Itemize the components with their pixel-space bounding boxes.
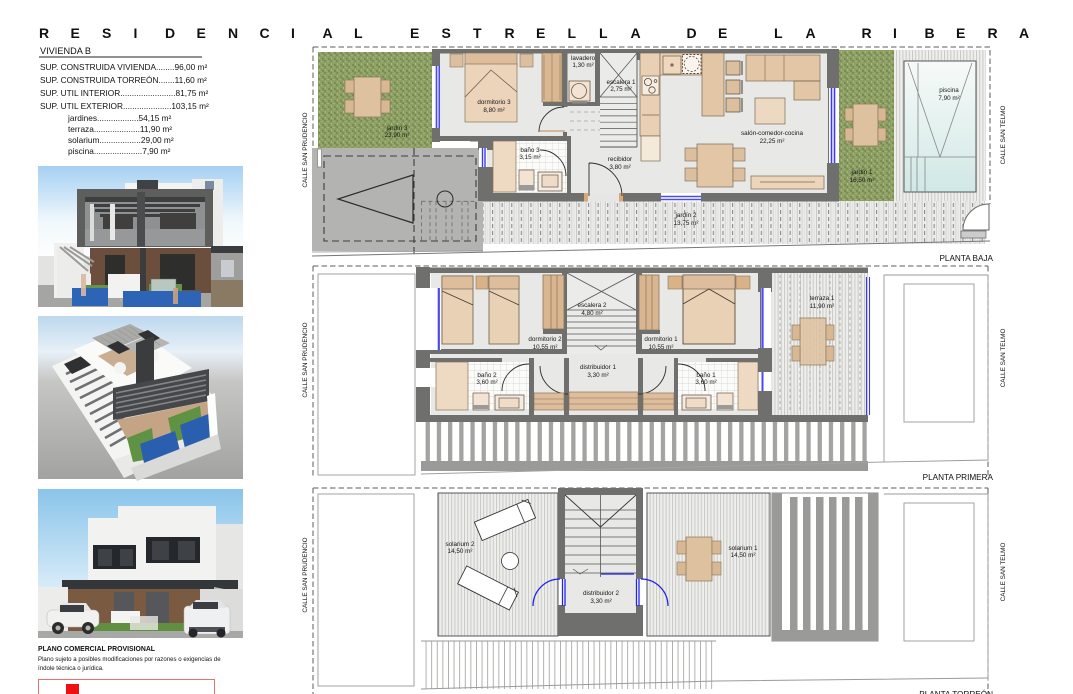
svg-text:3,60 m²: 3,60 m²: [695, 379, 716, 386]
svg-text:piscina: piscina: [939, 87, 959, 94]
svg-text:solarium 1: solarium 1: [728, 545, 758, 552]
svg-text:4,80 m²: 4,80 m²: [581, 310, 602, 317]
svg-text:13,75 m²: 13,75 m²: [674, 220, 699, 227]
svg-text:distribuidor 1: distribuidor 1: [580, 364, 617, 371]
svg-text:3,80 m²: 3,80 m²: [609, 164, 630, 171]
svg-text:23,90 m²: 23,90 m²: [385, 132, 410, 139]
svg-text:escalera 1: escalera 1: [606, 79, 636, 86]
svg-text:solarium..................29,0: solarium..................29,00 m²: [68, 135, 174, 145]
svg-text:CALLE SAN PRUDENCIO: CALLE SAN PRUDENCIO: [302, 112, 309, 187]
svg-text:11,90 m²: 11,90 m²: [810, 303, 834, 310]
svg-text:solarium 2: solarium 2: [445, 541, 475, 548]
svg-text:terraza 1: terraza 1: [810, 295, 835, 302]
svg-text:CALLE SAN TELMO: CALLE SAN TELMO: [1000, 543, 1007, 602]
svg-text:baño 2: baño 2: [477, 372, 497, 379]
svg-text:SUP. CONSTRUIDA VIVIENDA......: SUP. CONSTRUIDA VIVIENDA........96,00 m²: [40, 62, 207, 72]
svg-text:PLANTA TORREÓN: PLANTA TORREÓN: [919, 689, 993, 694]
svg-text:jardín 2: jardín 2: [674, 212, 697, 219]
svg-text:14,50 m²: 14,50 m²: [448, 548, 473, 555]
svg-text:2,75 m²: 2,75 m²: [610, 86, 631, 93]
svg-text:CALLE SAN PRUDENCIO: CALLE SAN PRUDENCIO: [302, 322, 309, 397]
svg-text:baño 3: baño 3: [520, 147, 540, 154]
svg-text:CALLE SAN TELMO: CALLE SAN TELMO: [1000, 106, 1007, 165]
svg-text:VIVIENDA B: VIVIENDA B: [40, 46, 91, 56]
svg-text:piscina.....................7,: piscina.....................7,90 m²: [68, 146, 171, 156]
svg-text:Plano sujeto a posibles modifi: Plano sujeto a posibles modificaciones p…: [38, 656, 221, 663]
svg-text:10,55 m²: 10,55 m²: [533, 344, 558, 351]
svg-text:8,80 m²: 8,80 m²: [483, 107, 504, 114]
svg-text:PLANTA BAJA: PLANTA BAJA: [939, 254, 993, 263]
svg-text:16,50 m²: 16,50 m²: [850, 177, 875, 184]
svg-text:dormitorio 2: dormitorio 2: [528, 336, 562, 343]
svg-text:3,15 m²: 3,15 m²: [519, 154, 540, 161]
svg-text:CALLE SAN PRUDENCIO: CALLE SAN PRUDENCIO: [302, 537, 309, 612]
svg-text:recibidor: recibidor: [608, 156, 632, 163]
svg-text:1,30 m²: 1,30 m²: [572, 62, 593, 69]
svg-text:10,55 m²: 10,55 m²: [649, 344, 674, 351]
svg-text:dormitorio 1: dormitorio 1: [644, 336, 678, 343]
svg-text:jardín 3: jardín 3: [385, 125, 408, 132]
svg-text:PLANO COMERCIAL PROVISIONAL: PLANO COMERCIAL PROVISIONAL: [38, 646, 155, 653]
svg-text:PLANTA PRIMERA: PLANTA PRIMERA: [923, 473, 994, 482]
svg-text:CALLE SAN TELMO: CALLE SAN TELMO: [1000, 329, 1007, 388]
svg-text:3,60 m²: 3,60 m²: [476, 379, 497, 386]
svg-text:escalera 2: escalera 2: [577, 302, 607, 309]
svg-text:22,25 m²: 22,25 m²: [760, 138, 785, 145]
svg-text:terraza....................11,: terraza....................11,90 m²: [68, 124, 172, 134]
svg-text:7,90 m²: 7,90 m²: [938, 95, 959, 102]
svg-text:distribuidor 2: distribuidor 2: [583, 590, 620, 597]
svg-text:lavadero: lavadero: [571, 55, 596, 62]
svg-text:baño 1: baño 1: [696, 372, 716, 379]
svg-text:SUP. UTIL INTERIOR............: SUP. UTIL INTERIOR......................…: [40, 88, 209, 98]
svg-text:jardín 1: jardín 1: [850, 169, 873, 176]
svg-text:3,30 m²: 3,30 m²: [587, 372, 608, 379]
svg-text:SUP. UTIL EXTERIOR............: SUP. UTIL EXTERIOR.....................1…: [40, 101, 209, 111]
svg-text:salón-comedor-cocina: salón-comedor-cocina: [741, 130, 803, 137]
svg-text:jardines..................54,1: jardines..................54,15 m²: [67, 113, 172, 123]
svg-text:3,30 m²: 3,30 m²: [590, 598, 611, 605]
svg-text:SUP. CONSTRUIDA TORREÓN.......: SUP. CONSTRUIDA TORREÓN.......11,60 m²: [40, 75, 207, 85]
svg-text:índole técnica o jurídica.: índole técnica o jurídica.: [38, 665, 104, 672]
svg-text:14,50 m²: 14,50 m²: [731, 552, 756, 559]
svg-text:dormitorio 3: dormitorio 3: [477, 99, 511, 106]
